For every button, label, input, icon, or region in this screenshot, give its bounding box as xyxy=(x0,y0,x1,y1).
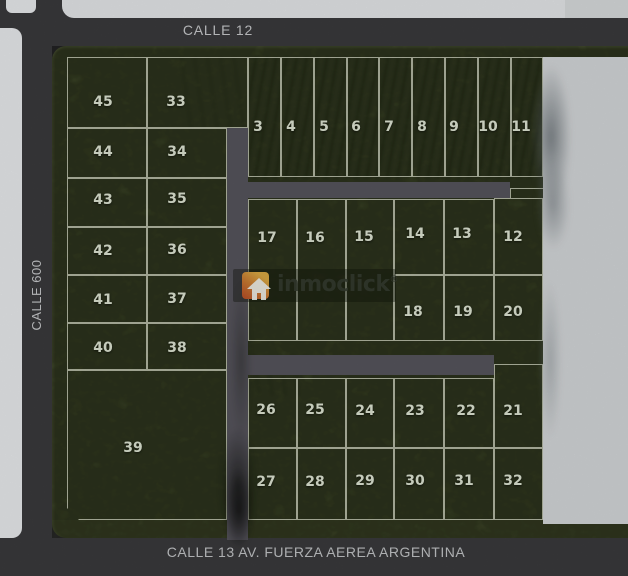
street-label-calle-13: CALLE 13 AV. FUERZA AEREA ARGENTINA xyxy=(116,541,516,563)
inmoclick-brand-text: inmoclick® xyxy=(277,272,399,299)
lot-number: 5 xyxy=(309,119,339,135)
lot-number: 41 xyxy=(88,292,118,308)
lot-33[interactable]: 33 xyxy=(147,57,248,128)
lot-10[interactable]: 10 xyxy=(478,57,511,177)
lot-number: 7 xyxy=(374,119,404,135)
lot-42[interactable]: 42 xyxy=(67,227,147,275)
lot-number: 14 xyxy=(400,226,430,242)
lot-18[interactable]: 18 xyxy=(394,275,444,341)
lot-number: 18 xyxy=(398,304,428,320)
lot-number: 17 xyxy=(252,230,282,246)
house-arrow-icon xyxy=(246,278,272,300)
lot-number: 3 xyxy=(243,119,273,135)
lot-number: 26 xyxy=(251,402,281,418)
lot-31[interactable]: 31 xyxy=(444,448,494,520)
lot-7[interactable]: 7 xyxy=(379,57,412,177)
lot-19[interactable]: 19 xyxy=(444,275,494,341)
lot-14[interactable]: 14 xyxy=(394,199,444,275)
lot-32[interactable]: 32 xyxy=(494,448,543,520)
lot-number: 38 xyxy=(162,340,192,356)
lot-34[interactable]: 34 xyxy=(147,128,227,178)
lot-4[interactable]: 4 xyxy=(281,57,314,177)
lot-5[interactable]: 5 xyxy=(314,57,347,177)
lot-6[interactable]: 6 xyxy=(347,57,379,177)
lot-number: 4 xyxy=(276,119,306,135)
subdivision-map: 4533443443354236413740383934567891011171… xyxy=(0,0,628,576)
lot-13[interactable]: 13 xyxy=(444,199,494,275)
lot-41[interactable]: 41 xyxy=(67,275,147,323)
lot-29[interactable]: 29 xyxy=(346,448,394,520)
lot-number: 33 xyxy=(161,94,191,110)
lot-number: 40 xyxy=(88,340,118,356)
lot-35[interactable]: 35 xyxy=(147,178,227,227)
lot-40[interactable]: 40 xyxy=(67,323,147,370)
lot-number: 43 xyxy=(88,192,118,208)
lot-number: 11 xyxy=(506,119,536,135)
lot-number: 27 xyxy=(251,474,281,490)
lot-number: 10 xyxy=(473,119,503,135)
lot-23[interactable]: 23 xyxy=(394,378,444,448)
lot-number: 32 xyxy=(498,473,528,489)
lot-number: 37 xyxy=(162,291,192,307)
lot-44[interactable]: 44 xyxy=(67,128,147,178)
lot-12-notch-line xyxy=(510,188,543,198)
lot-number: 9 xyxy=(439,119,469,135)
lot-number: 15 xyxy=(349,229,379,245)
lot-number: 25 xyxy=(300,402,330,418)
lot-9[interactable]: 9 xyxy=(445,57,478,177)
lot-number: 24 xyxy=(350,403,380,419)
lot-28[interactable]: 28 xyxy=(297,448,346,520)
lot-30[interactable]: 30 xyxy=(394,448,444,520)
lot-45[interactable]: 45 xyxy=(67,57,147,128)
lot-number: 16 xyxy=(300,230,330,246)
lot-22[interactable]: 22 xyxy=(444,378,494,448)
lot-number: 45 xyxy=(88,94,118,110)
lot-number: 36 xyxy=(162,242,192,258)
lot-number: 29 xyxy=(350,473,380,489)
lot-21[interactable]: 21 xyxy=(494,364,543,448)
lot-number: 39 xyxy=(118,440,148,456)
lot-25[interactable]: 25 xyxy=(297,378,346,448)
lot-43[interactable]: 43 xyxy=(67,178,147,227)
lot-number: 12 xyxy=(498,229,528,245)
lot-39[interactable]: 39 xyxy=(67,370,227,520)
lot-number: 22 xyxy=(451,403,481,419)
lot-8[interactable]: 8 xyxy=(412,57,445,177)
lot-number: 6 xyxy=(341,119,371,135)
registered-mark: ® xyxy=(390,275,399,285)
lot-20[interactable]: 20 xyxy=(494,275,543,341)
street-label-calle-12: CALLE 12 xyxy=(118,18,318,42)
lot-number: 8 xyxy=(407,119,437,135)
lot-37[interactable]: 37 xyxy=(147,275,227,323)
lot-number: 19 xyxy=(448,304,478,320)
lot-number: 31 xyxy=(449,473,479,489)
lot-12[interactable]: 12 xyxy=(494,198,543,275)
lot-number: 42 xyxy=(88,243,118,259)
inmoclick-logo-icon xyxy=(242,272,269,299)
lot-38[interactable]: 38 xyxy=(147,323,227,370)
lot-27[interactable]: 27 xyxy=(248,448,297,520)
lot-number: 20 xyxy=(498,304,528,320)
street-label-calle-600: CALLE 600 xyxy=(29,236,45,354)
inmoclick-watermark: inmoclick® xyxy=(233,269,396,302)
lot-number: 34 xyxy=(162,144,192,160)
lot-36[interactable]: 36 xyxy=(147,227,227,275)
lot-number: 44 xyxy=(88,144,118,160)
lot-26[interactable]: 26 xyxy=(248,378,297,448)
lot-24[interactable]: 24 xyxy=(346,378,394,448)
lot-number: 35 xyxy=(162,191,192,207)
lot-11[interactable]: 11 xyxy=(511,57,543,177)
lot-number: 13 xyxy=(447,226,477,242)
lot-number: 23 xyxy=(400,403,430,419)
lot-number: 21 xyxy=(498,403,528,419)
lot-number: 30 xyxy=(400,473,430,489)
lot-number: 28 xyxy=(300,474,330,490)
lot-3[interactable]: 3 xyxy=(248,57,281,177)
